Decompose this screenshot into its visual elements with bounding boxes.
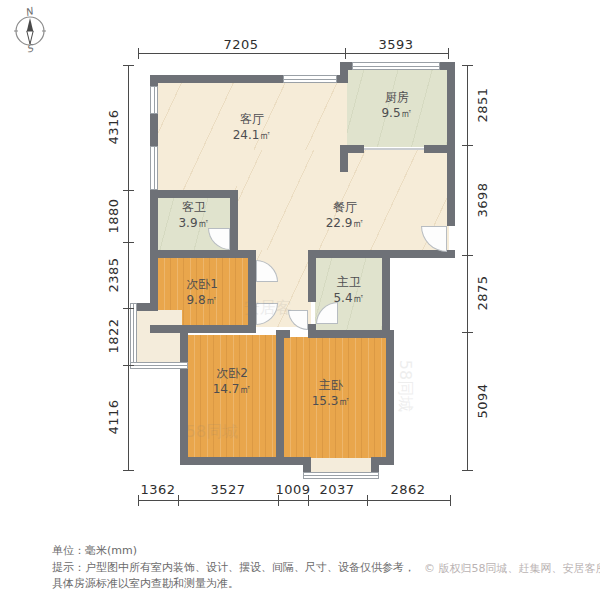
watermark: 安居客 [244, 298, 292, 319]
window [352, 62, 440, 70]
dim-value: 3593 [378, 37, 413, 52]
room-label-master-bedroom: 主卧 15.3㎡ [312, 378, 351, 409]
room-name: 次卧1 [186, 277, 218, 291]
dim-tick [462, 255, 473, 256]
dim-line [138, 53, 449, 54]
tip-line2: 具体房源标准以室内查勘和测量为准。 [52, 576, 239, 591]
dim-value: 3527 [210, 482, 245, 497]
window [150, 146, 158, 190]
dim-value: 4116 [106, 399, 121, 434]
dim-tick [123, 242, 134, 243]
bay-window [303, 472, 379, 479]
dim-tick [450, 495, 451, 506]
dim-value: 4316 [106, 109, 121, 144]
dim-tick [462, 332, 473, 333]
dim-value: 1822 [106, 318, 121, 353]
tip-line1: 提示：户型图中所有室内装饰、设计、摆设、间隔、尺寸、设备仅供参考， [52, 560, 415, 575]
dim-tick [448, 48, 449, 59]
watermark: 58同城 [186, 422, 238, 443]
wall [276, 330, 284, 465]
bay-window-floor [310, 458, 372, 473]
kitchen-sliding-door-track [364, 148, 424, 150]
room-area: 14.7㎡ [213, 382, 252, 396]
wall [180, 457, 311, 465]
dim-tick [367, 495, 368, 506]
wall [150, 325, 256, 333]
wall [284, 330, 290, 338]
wall [447, 62, 455, 226]
room-name: 餐厅 [333, 200, 357, 214]
dim-tick [278, 495, 279, 506]
room-label-master-bath: 主卫 5.4㎡ [333, 275, 364, 306]
dim-tick [123, 365, 134, 366]
dim-value: 1880 [106, 198, 121, 233]
dim-value: 1009 [275, 482, 310, 497]
copyright-note: © 版权归58同城、赶集网、安居客所有 [424, 561, 600, 576]
room-name: 客卫 [182, 200, 206, 214]
balcony-floor [136, 310, 182, 363]
window [150, 86, 158, 114]
room-name: 次卧2 [216, 366, 248, 380]
room-name: 厨房 [385, 90, 409, 104]
dim-tick [123, 65, 134, 66]
room-label-bedroom1: 次卧1 9.8㎡ [186, 277, 218, 308]
dim-tick [462, 65, 473, 66]
wall [308, 250, 390, 258]
dim-tick [123, 470, 134, 471]
room-area: 9.8㎡ [186, 293, 217, 307]
unit-note: 单位：毫米(mm) [52, 543, 137, 558]
wall [150, 190, 238, 198]
floorplan-canvas: N S 58 [0, 0, 600, 600]
wall [382, 250, 390, 338]
dim-value: 2875 [475, 275, 490, 310]
wall [150, 250, 256, 258]
compass-icon: N S [6, 6, 54, 54]
dim-value: 2851 [475, 87, 490, 122]
room-area: 5.4㎡ [333, 291, 364, 305]
dim-line [128, 65, 129, 470]
dim-line [138, 500, 450, 501]
dim-value: 5094 [475, 383, 490, 418]
dim-tick [462, 470, 473, 471]
balcony-window [130, 362, 188, 369]
room-label-kitchen: 厨房 9.5㎡ [381, 90, 412, 121]
dim-value: 2862 [390, 482, 425, 497]
wall [308, 250, 316, 302]
dim-line [467, 65, 468, 470]
room-label-guest-bath: 客卫 3.9㎡ [178, 200, 209, 231]
watermark: 58同城 [394, 360, 415, 412]
window [283, 75, 337, 83]
dim-tick [345, 48, 346, 59]
dim-tick [123, 308, 134, 309]
dim-tick [138, 495, 139, 506]
dim-tick [123, 190, 134, 191]
room-area: 9.5㎡ [381, 106, 412, 120]
dim-value: 1362 [140, 482, 175, 497]
room-name: 主卧 [319, 378, 343, 392]
dim-value: 2037 [319, 482, 354, 497]
room-label-living: 客厅 24.1㎡ [233, 112, 272, 143]
compass-north-label: N [24, 6, 36, 18]
dim-tick [138, 48, 139, 59]
dim-tick [308, 495, 309, 506]
wall [230, 190, 238, 258]
wall [137, 303, 158, 311]
wall [180, 328, 188, 465]
room-area: 24.1㎡ [233, 128, 272, 142]
dim-value: 7205 [223, 37, 258, 52]
room-area: 22.9㎡ [326, 216, 365, 230]
dim-tick [178, 495, 179, 506]
room-name: 客厅 [240, 112, 264, 126]
dim-tick [462, 145, 473, 146]
room-label-bedroom2: 次卧2 14.7㎡ [213, 366, 252, 397]
room-name: 主卫 [337, 275, 361, 289]
wall [340, 145, 348, 172]
wall [308, 330, 390, 338]
dim-value: 2385 [106, 257, 121, 292]
wall [424, 145, 455, 153]
wall [248, 258, 256, 333]
balcony-window [130, 303, 137, 369]
room-area: 3.9㎡ [178, 216, 209, 230]
wall [308, 324, 316, 332]
room-label-dining: 餐厅 22.9㎡ [326, 200, 365, 231]
room-area: 15.3㎡ [312, 394, 351, 408]
dim-value: 3698 [475, 182, 490, 217]
